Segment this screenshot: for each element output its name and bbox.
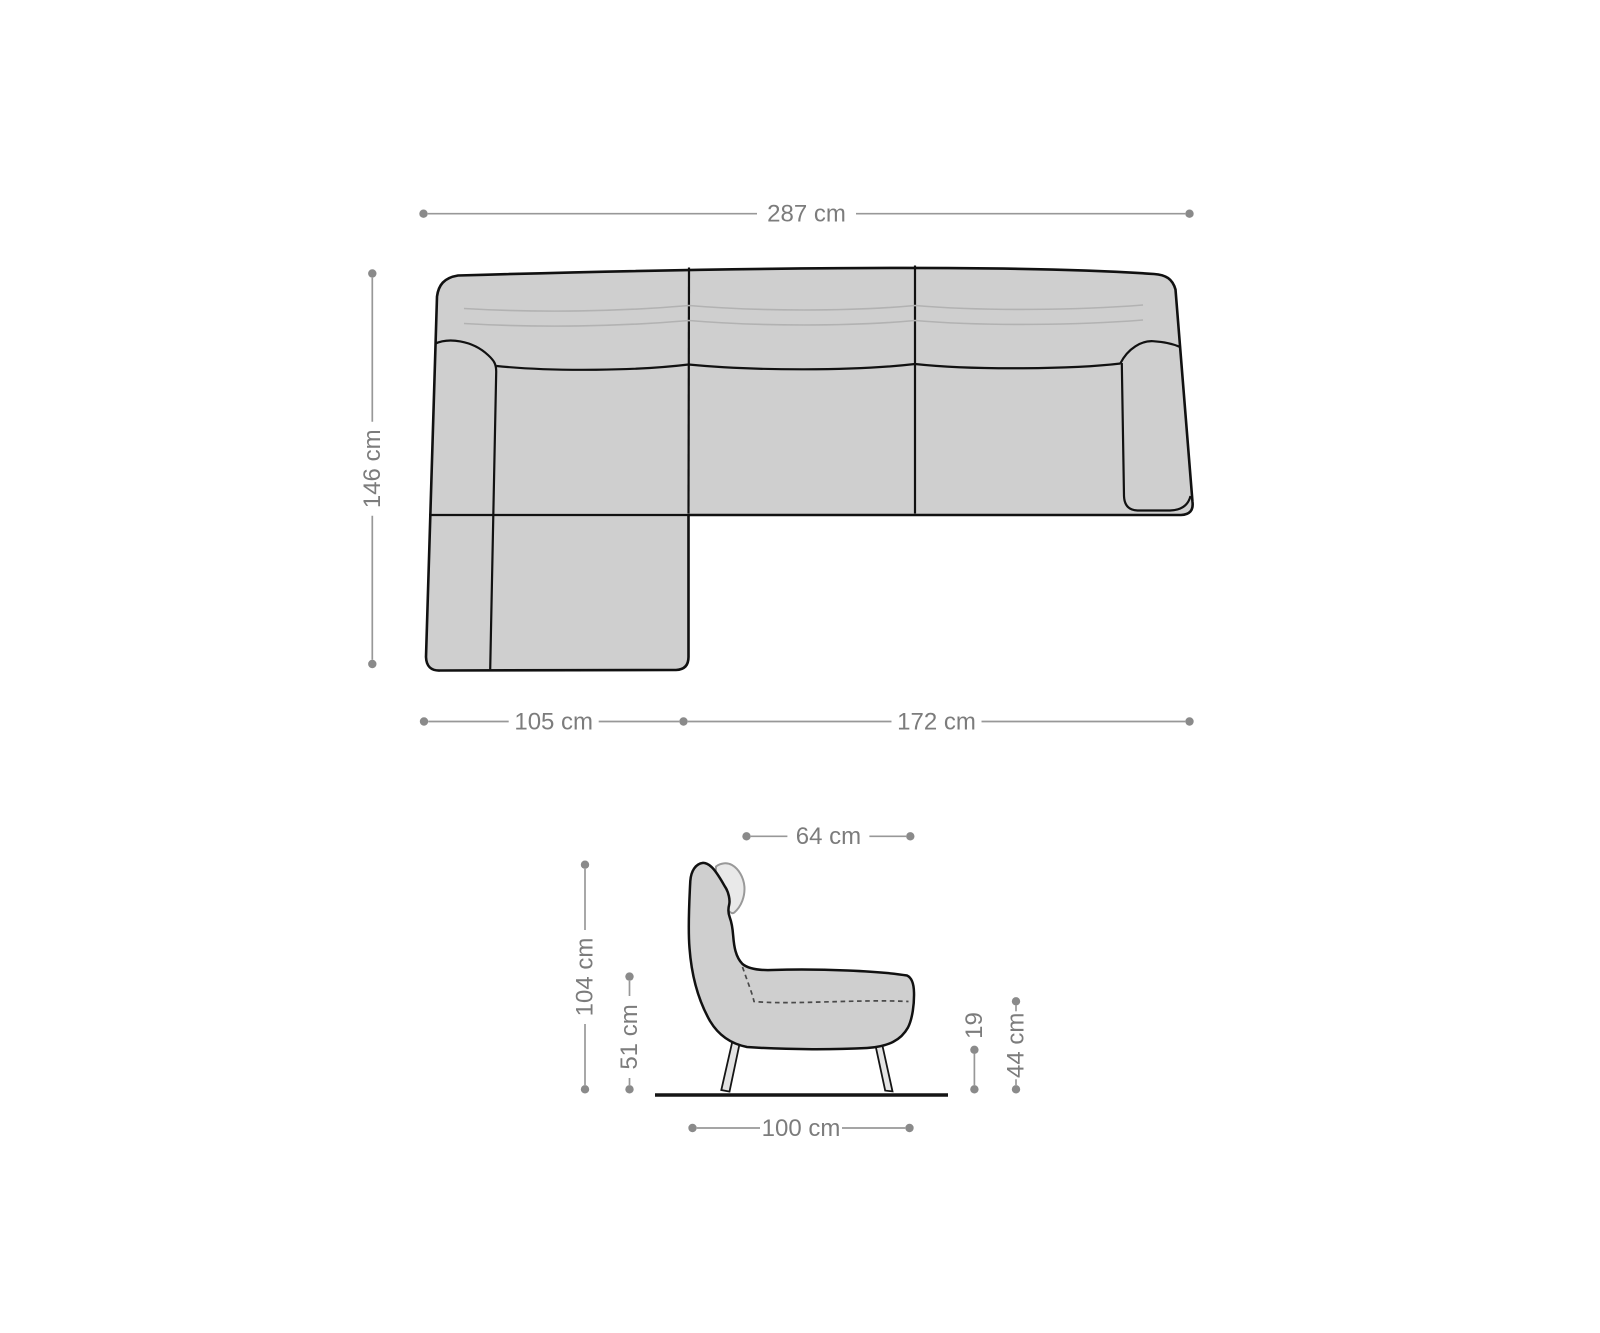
svg-text:44 cm: 44 cm bbox=[1003, 1013, 1030, 1078]
svg-text:104 cm: 104 cm bbox=[572, 938, 599, 1017]
svg-text:51 cm: 51 cm bbox=[616, 1004, 643, 1069]
svg-text:146 cm: 146 cm bbox=[359, 429, 386, 508]
svg-text:100 cm: 100 cm bbox=[762, 1115, 841, 1142]
svg-text:19: 19 bbox=[961, 1012, 988, 1039]
svg-text:287 cm: 287 cm bbox=[767, 201, 846, 228]
svg-text:64 cm: 64 cm bbox=[796, 823, 861, 850]
svg-text:105 cm: 105 cm bbox=[514, 708, 593, 735]
svg-text:172 cm: 172 cm bbox=[897, 708, 976, 735]
